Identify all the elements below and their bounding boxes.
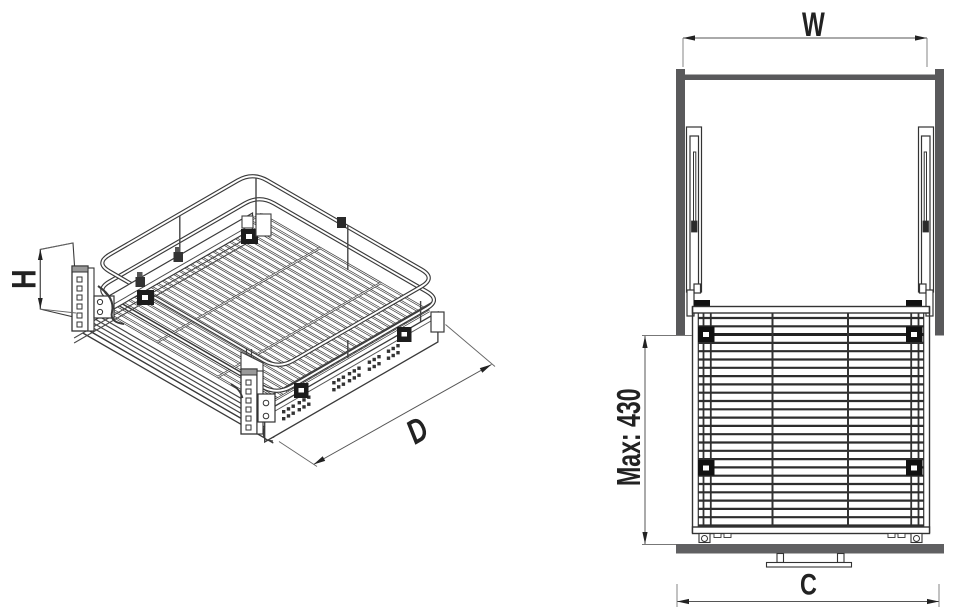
svg-text:D: D [400,410,435,452]
svg-text:Max: 430: Max: 430 [611,388,648,486]
svg-text:W: W [802,6,826,44]
svg-text:C: C [800,568,817,601]
svg-text:H: H [5,269,44,289]
